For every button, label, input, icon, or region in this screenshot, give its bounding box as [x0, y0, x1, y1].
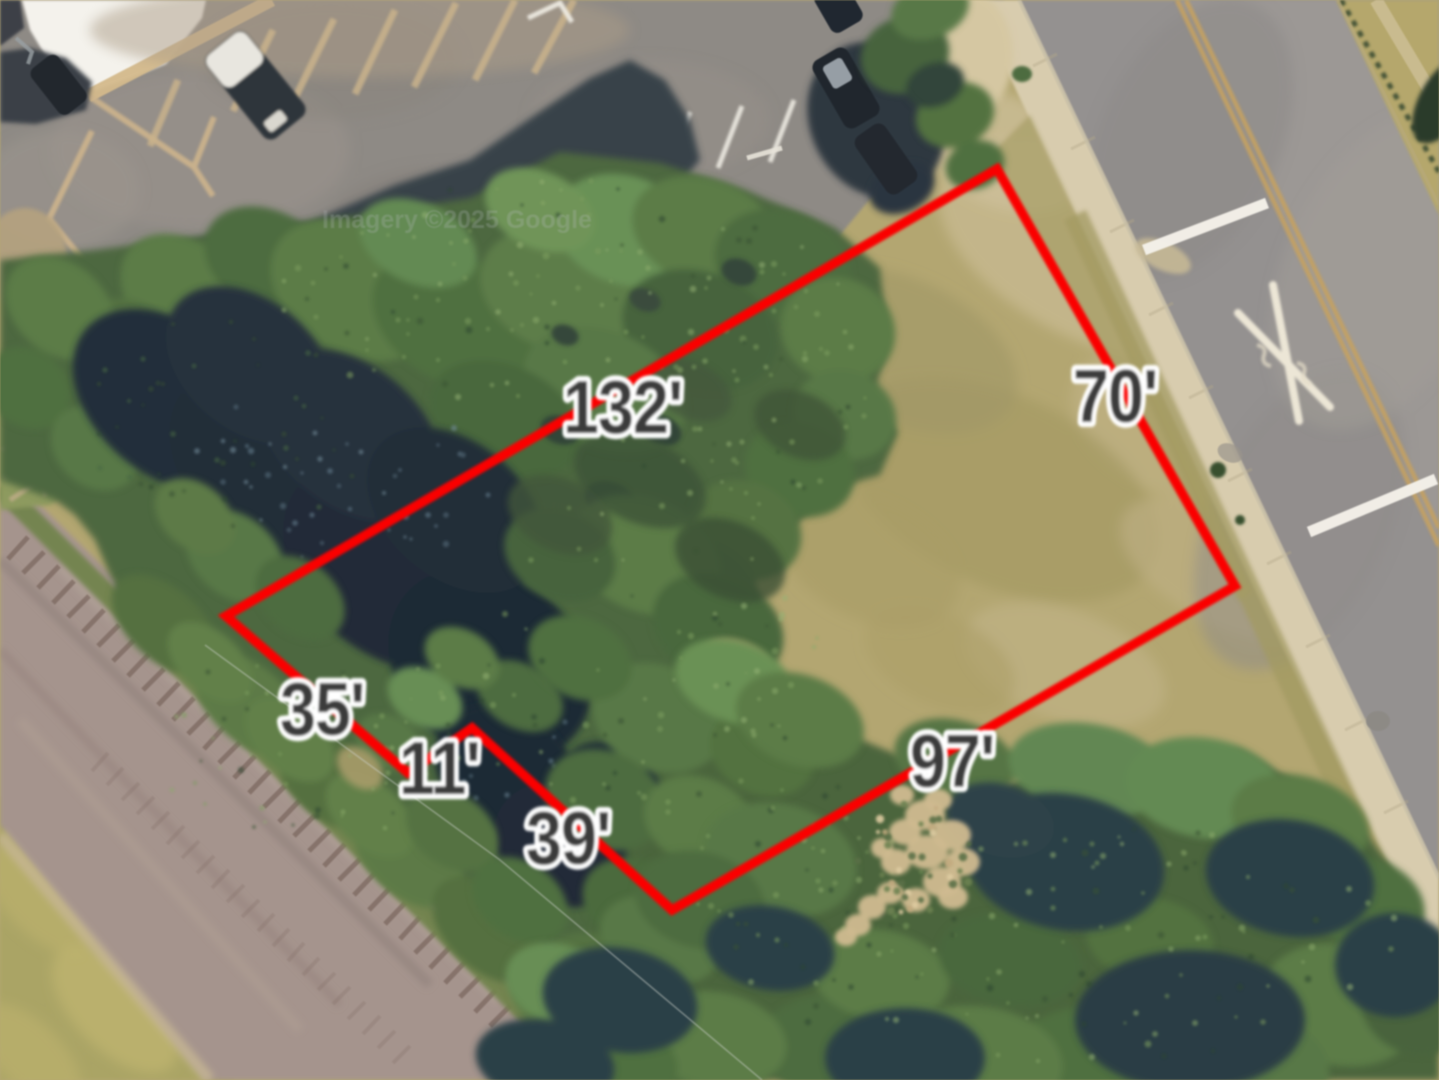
svg-text:39': 39' [526, 796, 610, 880]
svg-text:Imagery ©2025 Google: Imagery ©2025 Google [322, 206, 592, 234]
svg-text:97': 97' [910, 719, 994, 803]
svg-text:70': 70' [1073, 354, 1157, 438]
svg-text:35': 35' [280, 667, 364, 751]
svg-text:132': 132' [563, 365, 683, 449]
svg-text:11': 11' [399, 726, 480, 810]
